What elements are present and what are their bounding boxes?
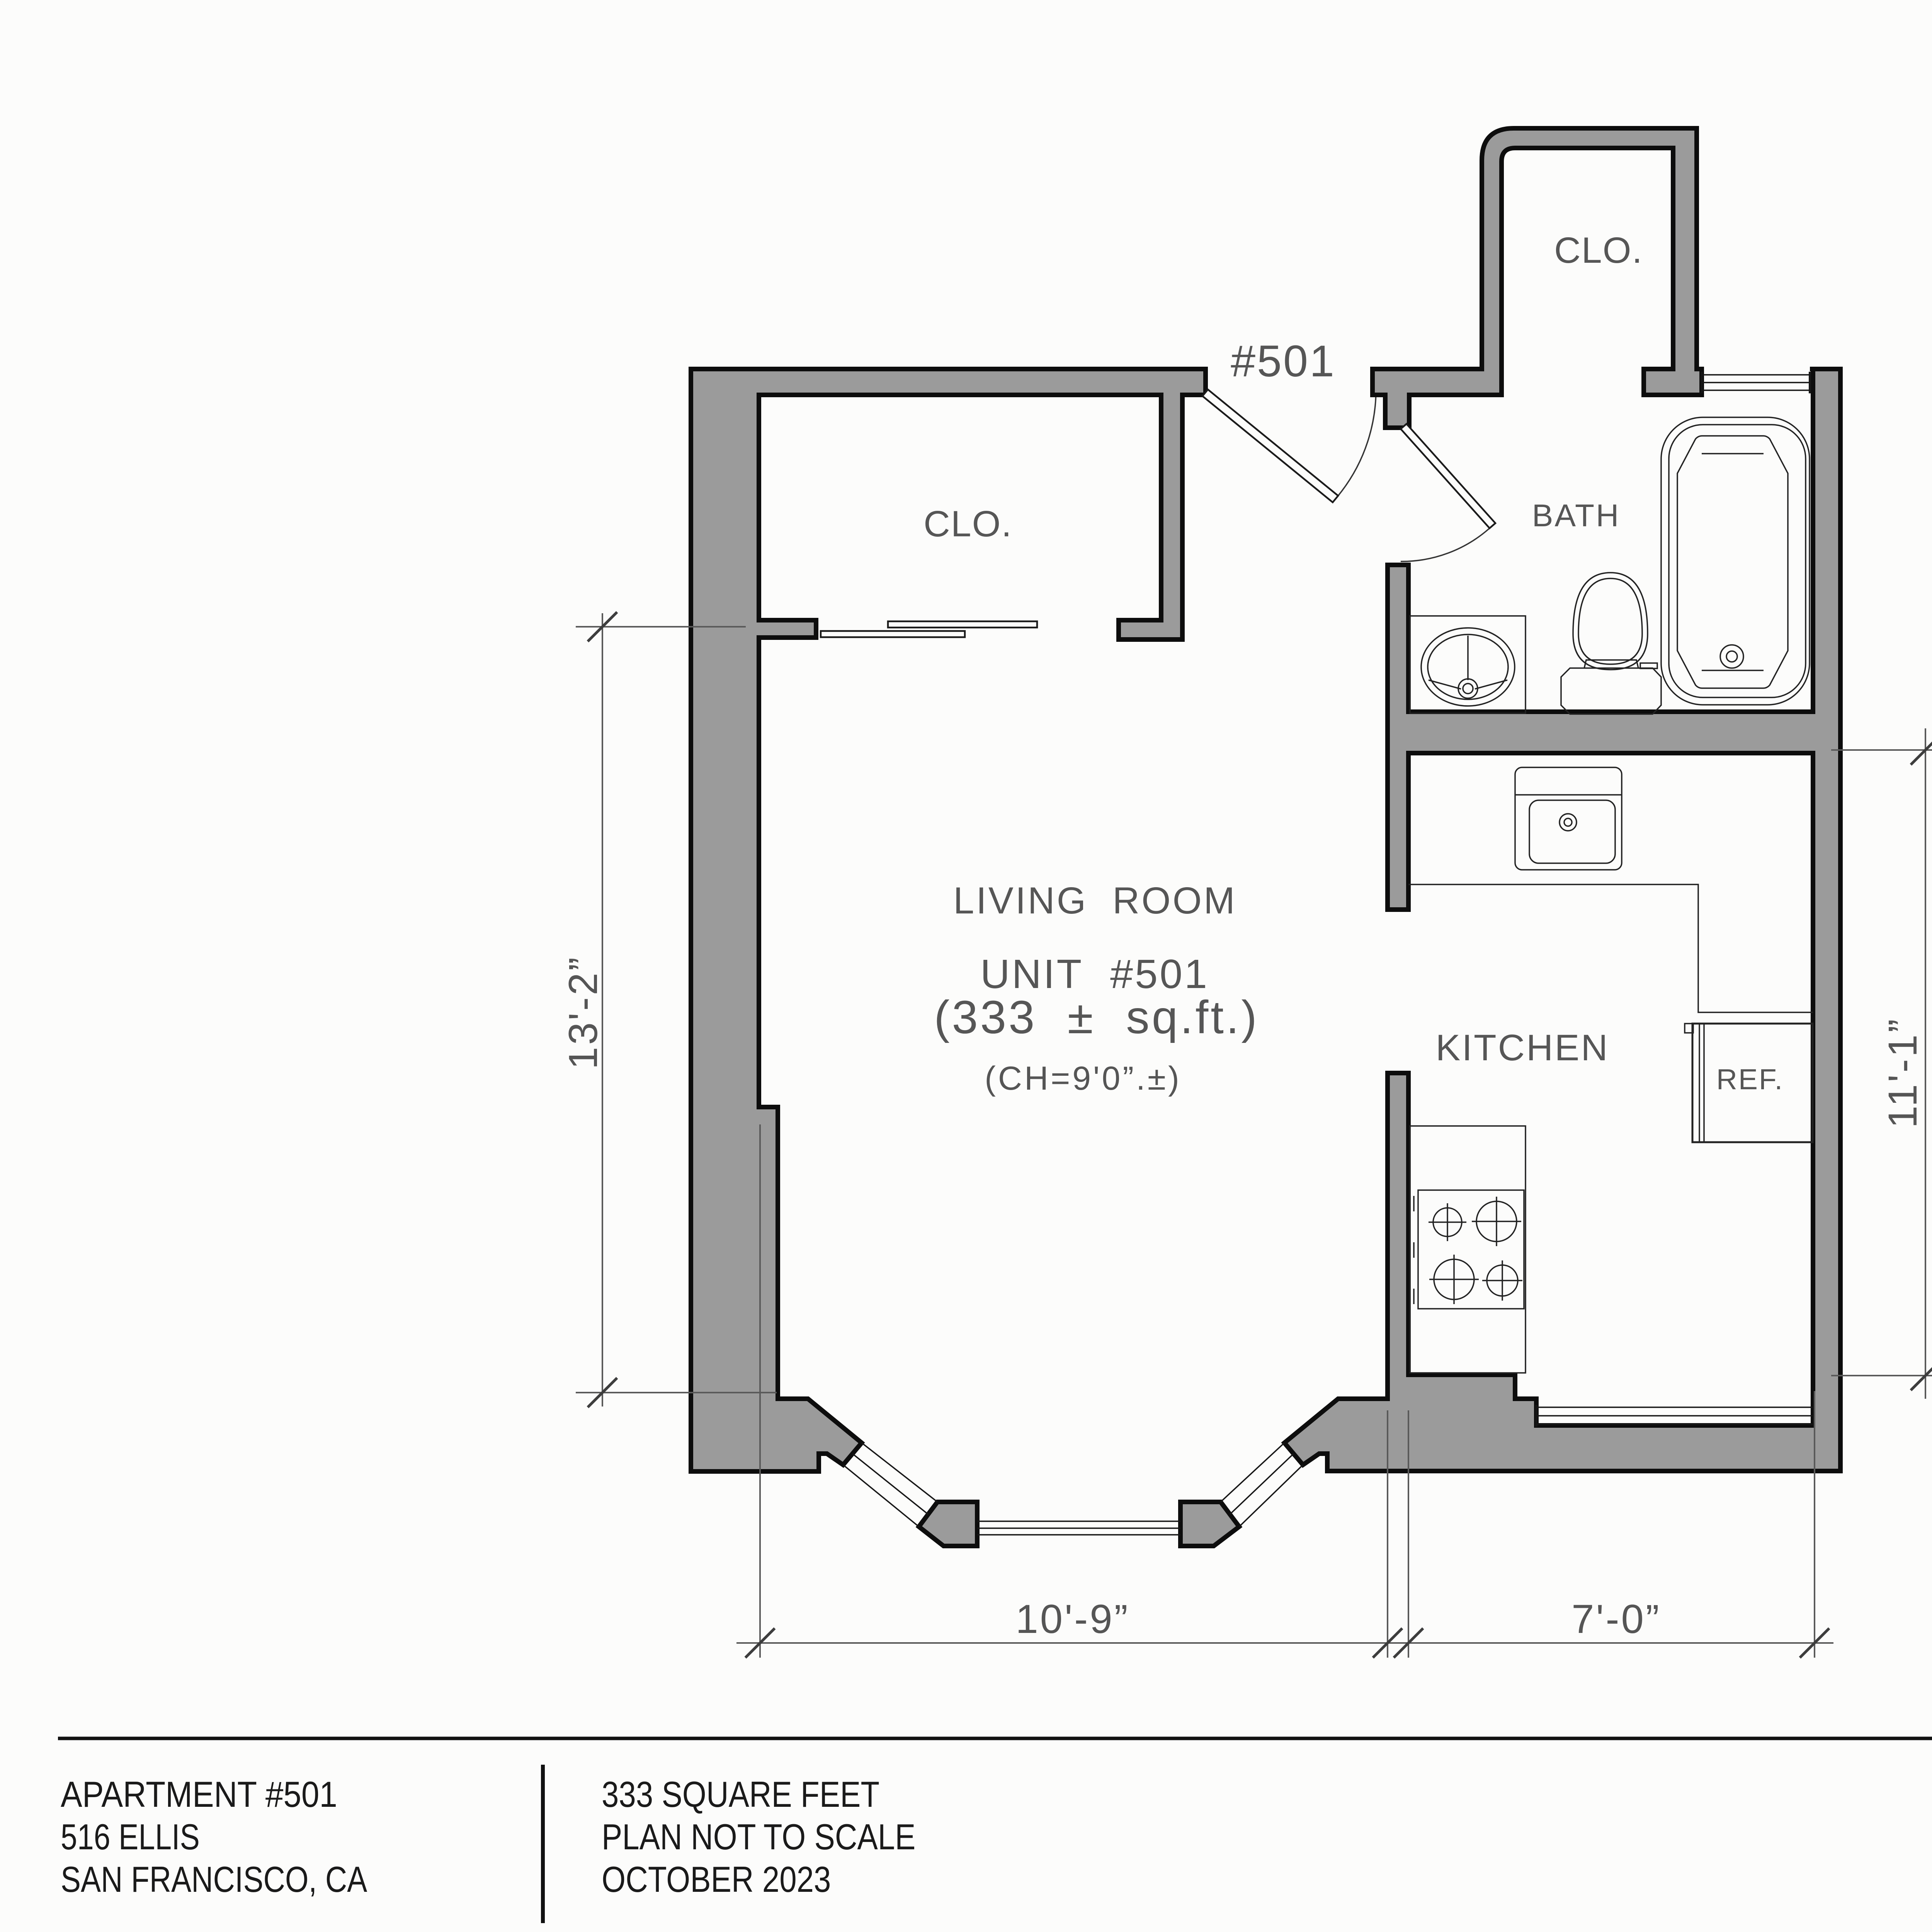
svg-text:CLO.: CLO. [923,503,1012,544]
svg-text:#501: #501 [1231,337,1336,386]
svg-text:UNIT #501: UNIT #501 [980,951,1209,997]
svg-text:11'-1”: 11'-1” [1880,1017,1925,1128]
svg-text:10'-9”: 10'-9” [1015,1597,1129,1642]
svg-text:APARTMENT #501: APARTMENT #501 [61,1774,337,1815]
svg-text:13'-2”: 13'-2” [561,955,606,1069]
svg-text:PLAN NOT TO SCALE: PLAN NOT TO SCALE [602,1817,915,1857]
svg-text:7'-0”: 7'-0” [1571,1597,1661,1642]
svg-text:CLO.: CLO. [1554,230,1643,271]
svg-text:516 ELLIS: 516 ELLIS [61,1817,200,1857]
svg-text:(CH=9'0”.±): (CH=9'0”.±) [985,1060,1182,1097]
svg-text:OCTOBER 2023: OCTOBER 2023 [602,1859,831,1900]
svg-text:SAN FRANCISCO, CA: SAN FRANCISCO, CA [61,1859,367,1900]
svg-text:333 SQUARE FEET: 333 SQUARE FEET [602,1774,879,1815]
svg-text:KITCHEN: KITCHEN [1435,1027,1609,1068]
svg-text:REF.: REF. [1716,1063,1784,1095]
svg-text:(333 ± sq.ft.): (333 ± sq.ft.) [934,991,1259,1043]
svg-text:BATH: BATH [1532,498,1621,533]
svg-text:LIVING ROOM: LIVING ROOM [953,879,1237,922]
